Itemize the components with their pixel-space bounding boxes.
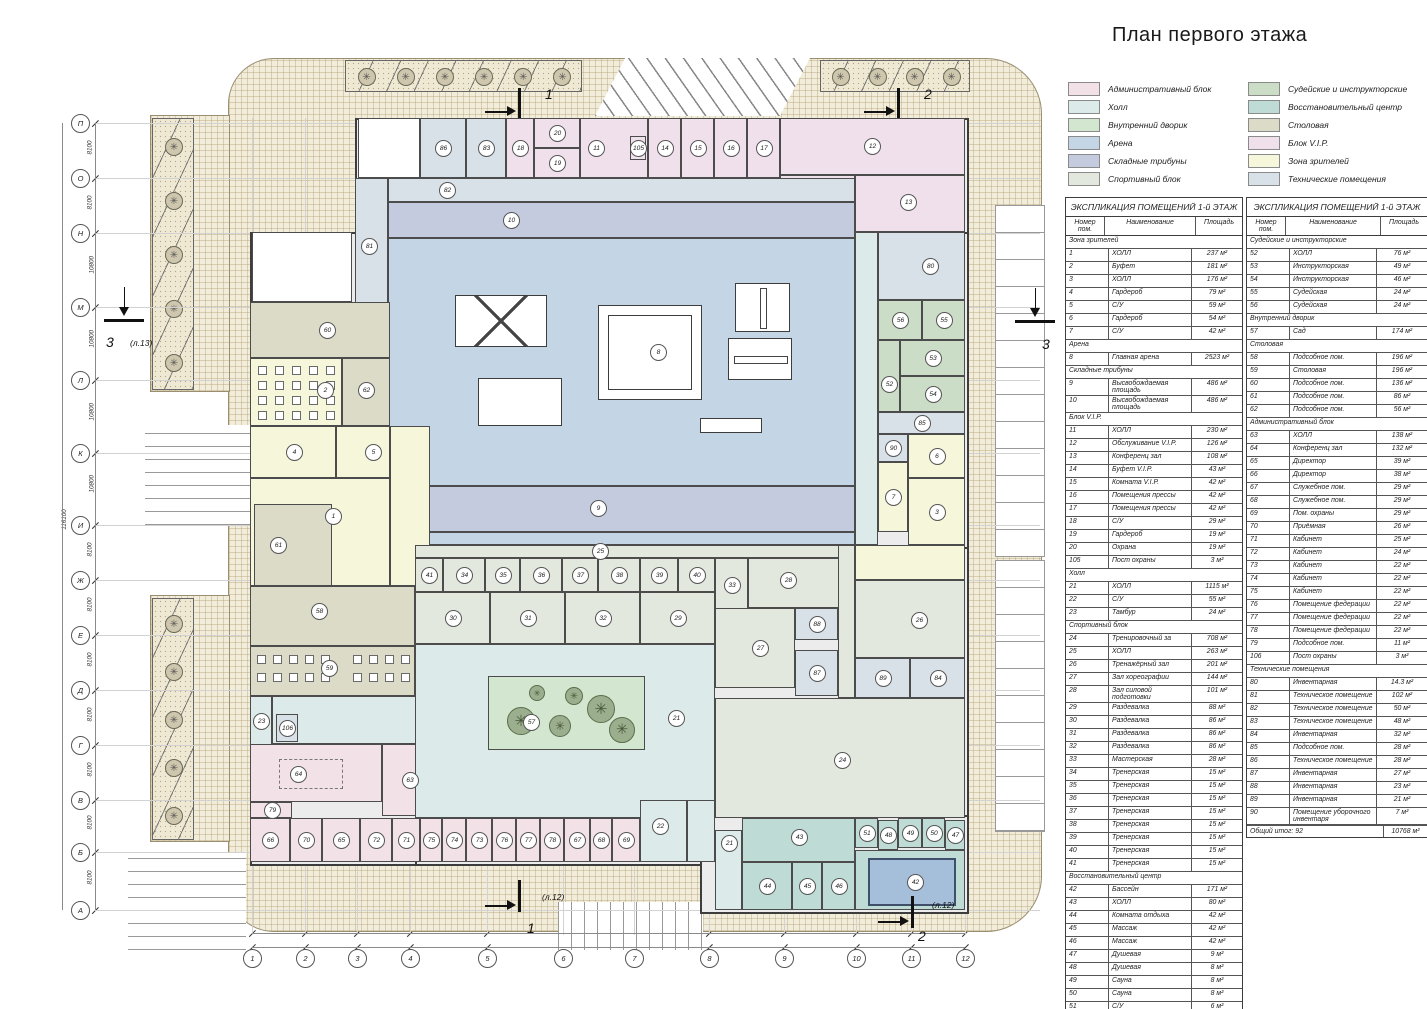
cell-number: 45 bbox=[1066, 924, 1109, 936]
cell-number: 82 bbox=[1247, 704, 1290, 716]
cell-area: 144 м² bbox=[1192, 673, 1242, 685]
parking-stripes bbox=[128, 852, 246, 950]
room-number-39: 39 bbox=[651, 567, 668, 584]
cafe-table-icon bbox=[292, 381, 301, 390]
cell-number: 44 bbox=[1066, 911, 1109, 923]
table-row: 26Тренажёрный зал201 м² bbox=[1066, 660, 1242, 673]
cell-area: 42 м² bbox=[1192, 327, 1242, 339]
cell-name: Служебное пом. bbox=[1290, 496, 1377, 508]
cell-area: 15 м² bbox=[1192, 833, 1242, 845]
cell-area: 14.3 м² bbox=[1377, 678, 1427, 690]
table-section-row: Внутренний дворик bbox=[1247, 314, 1427, 327]
table-row: 84Инвентарная32 м² bbox=[1247, 730, 1427, 743]
cell-area: 171 м² bbox=[1192, 885, 1242, 897]
cell-name: Техническое помещение bbox=[1290, 691, 1377, 703]
cell-area: 11 м² bbox=[1377, 639, 1427, 651]
room-number-49: 49 bbox=[902, 825, 919, 842]
table-section-row: Административный блок bbox=[1247, 418, 1427, 431]
cell-area: 76 м² bbox=[1377, 249, 1427, 261]
cell-number: 84 bbox=[1247, 730, 1290, 742]
room-number-64: 64 bbox=[290, 766, 307, 783]
room-area bbox=[388, 532, 855, 545]
section-label: 3 bbox=[106, 334, 114, 350]
table-footer: Общий итог: 9210768 м² bbox=[1247, 825, 1427, 837]
table-row: 90Помещение уборочного инвентаря7 м² bbox=[1247, 808, 1427, 825]
cell-number: 16 bbox=[1066, 491, 1109, 503]
table-section-row: Блок V.I.P. bbox=[1066, 413, 1242, 426]
axis-circle-8: 8 bbox=[700, 949, 719, 968]
legend-swatch bbox=[1248, 82, 1280, 96]
room-number-69: 69 bbox=[618, 832, 635, 849]
cell-number: 105 bbox=[1066, 556, 1109, 568]
table-row: 15Комната V.I.P.42 м² bbox=[1066, 478, 1242, 491]
tree-icon: ✳ bbox=[436, 68, 454, 86]
cell-number: 24 bbox=[1066, 634, 1109, 646]
cell-name: ХОЛЛ bbox=[1290, 249, 1377, 261]
cell-name: Высвобождаемая площадь bbox=[1109, 396, 1192, 412]
cell-name: Подсобное пом. bbox=[1290, 379, 1377, 391]
cell-area: 3 м² bbox=[1192, 556, 1242, 568]
cafe-table-icon bbox=[385, 673, 394, 682]
cell-name: Судейская bbox=[1290, 288, 1377, 300]
table-row: 51С/У6 м² bbox=[1066, 1002, 1242, 1009]
cell-name: Мастерская bbox=[1109, 755, 1192, 767]
cell-number: 33 bbox=[1066, 755, 1109, 767]
section-sheet-ref: (л.12) bbox=[542, 892, 564, 902]
room-number-80: 80 bbox=[922, 258, 939, 275]
cell-area: 15 м² bbox=[1192, 794, 1242, 806]
table-row: 33Мастерская28 м² bbox=[1066, 755, 1242, 768]
cell-area: 42 м² bbox=[1192, 937, 1242, 949]
cell-name: Сауна bbox=[1109, 976, 1192, 988]
room-number-105: 105 bbox=[630, 140, 647, 157]
cell-number: 74 bbox=[1247, 574, 1290, 586]
room-number-53: 53 bbox=[925, 350, 942, 367]
cell-name: Кабинет bbox=[1290, 561, 1377, 573]
table-section-row: Спортивный блок bbox=[1066, 621, 1242, 634]
cell-area: 22 м² bbox=[1377, 587, 1427, 599]
cell-area: 32 м² bbox=[1377, 730, 1427, 742]
room-number-15: 15 bbox=[690, 140, 707, 157]
room-area bbox=[358, 118, 420, 178]
cell-number: 68 bbox=[1247, 496, 1290, 508]
cell-name: Инвентарная bbox=[1290, 730, 1377, 742]
cell-name: Подсобное пом. bbox=[1290, 405, 1377, 417]
cell-number: 83 bbox=[1247, 717, 1290, 729]
room-number-27: 27 bbox=[752, 640, 769, 657]
cell-number: 21 bbox=[1066, 582, 1109, 594]
section-marker-lead bbox=[485, 905, 509, 907]
room-number-45: 45 bbox=[799, 878, 816, 895]
section-sheet-ref: (л.13) bbox=[130, 338, 152, 348]
room-number-6: 6 bbox=[929, 448, 946, 465]
cell-number: 17 bbox=[1066, 504, 1109, 516]
cell-area: 230 м² bbox=[1192, 426, 1242, 438]
table-row: 47Душевая9 м² bbox=[1066, 950, 1242, 963]
cell-number: 23 bbox=[1066, 608, 1109, 620]
cell-name: ХОЛЛ bbox=[1109, 647, 1192, 659]
room-number-72: 72 bbox=[368, 832, 385, 849]
cell-area: 196 м² bbox=[1377, 353, 1427, 365]
room-number-37: 37 bbox=[572, 567, 589, 584]
cell-name: Тренировочный за bbox=[1109, 634, 1192, 646]
col-header-name: Наименование bbox=[1286, 217, 1381, 235]
cell-number: 75 bbox=[1247, 587, 1290, 599]
cell-name: Подсобное пом. bbox=[1290, 353, 1377, 365]
section-arrow-icon bbox=[507, 106, 516, 116]
legend-label: Внутренний дворик bbox=[1108, 120, 1187, 130]
legend-label: Холл bbox=[1108, 102, 1128, 112]
legend-item: Технические помещения bbox=[1248, 170, 1407, 188]
table-row: 17Помещения прессы42 м² bbox=[1066, 504, 1242, 517]
cell-area: 29 м² bbox=[1377, 496, 1427, 508]
tree-icon: ✳ bbox=[165, 615, 183, 633]
section-label: 2 bbox=[924, 86, 932, 102]
legend-label: Арена bbox=[1108, 138, 1133, 148]
cell-number: 41 bbox=[1066, 859, 1109, 871]
cell-number: 47 bbox=[1066, 950, 1109, 962]
cell-number: 58 bbox=[1247, 353, 1290, 365]
gym-equipment-icon bbox=[478, 378, 562, 426]
footer-total-area: 10768 м² bbox=[1384, 826, 1427, 837]
table-row: 73Кабинет22 м² bbox=[1247, 561, 1427, 574]
room-number-78: 78 bbox=[544, 832, 561, 849]
axis-circle-5: 5 bbox=[478, 949, 497, 968]
cell-number: 60 bbox=[1247, 379, 1290, 391]
cell-number: 13 bbox=[1066, 452, 1109, 464]
cell-number: 49 bbox=[1066, 976, 1109, 988]
table-row: 105Пост охраны3 м² bbox=[1066, 556, 1242, 569]
table-row: 70Приёмная26 м² bbox=[1247, 522, 1427, 535]
room-area bbox=[252, 232, 352, 302]
tree-icon: ✳ bbox=[397, 68, 415, 86]
tree-icon: ✳ bbox=[906, 68, 924, 86]
cell-number: 81 bbox=[1247, 691, 1290, 703]
col-header-number: Номер пом. bbox=[1066, 217, 1105, 235]
cell-name: Кабинет bbox=[1290, 587, 1377, 599]
section-label: 3 bbox=[1042, 336, 1050, 352]
table-row: 20Охрана19 м² bbox=[1066, 543, 1242, 556]
room-number-8: 8 bbox=[650, 344, 667, 361]
dim-line-left bbox=[95, 123, 96, 910]
landscaping-strip: ✳✳✳✳ bbox=[820, 60, 970, 92]
legend-swatch bbox=[1068, 154, 1100, 168]
cell-number: 28 bbox=[1066, 686, 1109, 702]
gym-equipment-icon bbox=[735, 283, 790, 332]
room-number-12: 12 bbox=[864, 138, 881, 155]
cell-name: ХОЛЛ bbox=[1109, 275, 1192, 287]
legend-item: Складные трибуны bbox=[1068, 152, 1211, 170]
cell-area: 181 м² bbox=[1192, 262, 1242, 274]
cell-name: ХОЛЛ bbox=[1109, 898, 1192, 910]
table-row: 32Раздевалка86 м² bbox=[1066, 742, 1242, 755]
cell-number: 89 bbox=[1247, 795, 1290, 807]
table-row: 48Душевая8 м² bbox=[1066, 963, 1242, 976]
table-row: 7С/У42 м² bbox=[1066, 327, 1242, 340]
cell-name: Главная арена bbox=[1109, 353, 1192, 365]
room-number-79: 79 bbox=[264, 802, 281, 819]
cell-number: 19 bbox=[1066, 530, 1109, 542]
cell-area: 196 м² bbox=[1377, 366, 1427, 378]
axis-circle-10: 10 bbox=[847, 949, 866, 968]
axis-circle-В: В bbox=[71, 791, 90, 810]
room-number-89: 89 bbox=[875, 670, 892, 687]
cell-number: 51 bbox=[1066, 1002, 1109, 1009]
axis-circle-Д: Д bbox=[71, 681, 90, 700]
room-number-56: 56 bbox=[892, 312, 909, 329]
section-marker-lead bbox=[878, 921, 902, 923]
cell-number: 63 bbox=[1247, 431, 1290, 443]
room-number-28: 28 bbox=[780, 572, 797, 589]
axis-circle-П: П bbox=[71, 114, 90, 133]
room-number-9: 9 bbox=[590, 500, 607, 517]
cafe-table-icon bbox=[258, 396, 267, 405]
legend-swatch bbox=[1068, 136, 1100, 150]
cafe-table-icon bbox=[309, 366, 318, 375]
table-section-row: Столовая bbox=[1247, 340, 1427, 353]
cafe-table-icon bbox=[326, 411, 335, 420]
room-number-43: 43 bbox=[791, 829, 808, 846]
cafe-table-icon bbox=[305, 673, 314, 682]
cell-name: Тамбур bbox=[1109, 608, 1192, 620]
axis-circle-А: А bbox=[71, 901, 90, 920]
table-section-row: Технические помещения bbox=[1247, 665, 1427, 678]
cafe-table-icon bbox=[273, 673, 282, 682]
table-row: 29Раздевалка88 м² bbox=[1066, 703, 1242, 716]
cafe-table-icon bbox=[305, 655, 314, 664]
cell-name: ХОЛЛ bbox=[1290, 431, 1377, 443]
cell-name: ХОЛЛ bbox=[1109, 582, 1192, 594]
room-9 bbox=[388, 486, 855, 532]
cafe-table-icon bbox=[257, 655, 266, 664]
room-10 bbox=[388, 202, 855, 238]
cafe-table-icon bbox=[273, 655, 282, 664]
table-row: 58Подсобное пом.196 м² bbox=[1247, 353, 1427, 366]
cell-number: 43 bbox=[1066, 898, 1109, 910]
room-number-70: 70 bbox=[298, 832, 315, 849]
table-row: 56Судейская24 м² bbox=[1247, 301, 1427, 314]
table-row: 72Кабинет24 м² bbox=[1247, 548, 1427, 561]
axis-circle-Г: Г bbox=[71, 736, 90, 755]
cell-name: Тренерская bbox=[1109, 807, 1192, 819]
legend-swatch bbox=[1248, 100, 1280, 114]
table-row: 82Техническое помещение50 м² bbox=[1247, 704, 1427, 717]
section-sheet-ref: (л.12) bbox=[932, 900, 954, 910]
table-row: 74Кабинет22 м² bbox=[1247, 574, 1427, 587]
cell-number: 27 bbox=[1066, 673, 1109, 685]
room-57: ✳✳✳✳✳✳ bbox=[488, 676, 645, 750]
conference-table-outline bbox=[279, 759, 343, 789]
dim-label: 8100 bbox=[87, 542, 94, 556]
cell-number: 77 bbox=[1247, 613, 1290, 625]
garden-tree-icon: ✳ bbox=[609, 717, 635, 743]
cafe-table-icon bbox=[258, 411, 267, 420]
room-number-44: 44 bbox=[759, 878, 776, 895]
cell-area: 15 м² bbox=[1192, 846, 1242, 858]
cell-number: 66 bbox=[1247, 470, 1290, 482]
axis-circle-11: 11 bbox=[902, 949, 921, 968]
table-row: 53Инструкторская49 м² bbox=[1247, 262, 1427, 275]
table-row: 71Кабинет25 м² bbox=[1247, 535, 1427, 548]
table-row: 62Подсобное пом.56 м² bbox=[1247, 405, 1427, 418]
cell-area: 15 м² bbox=[1192, 768, 1242, 780]
cell-area: 22 м² bbox=[1377, 561, 1427, 573]
cell-name: Раздевалка bbox=[1109, 742, 1192, 754]
room-number-16: 16 bbox=[723, 140, 740, 157]
axis-circle-1: 1 bbox=[243, 949, 262, 968]
tree-icon: ✳ bbox=[553, 68, 571, 86]
cell-name: Директор bbox=[1290, 470, 1377, 482]
table-row: 43ХОЛЛ80 м² bbox=[1066, 898, 1242, 911]
table-row: 34Тренерская15 м² bbox=[1066, 768, 1242, 781]
cafe-table-icon bbox=[401, 655, 410, 664]
cell-area: 42 м² bbox=[1192, 478, 1242, 490]
room-number-42: 42 bbox=[907, 874, 924, 891]
room-number-71: 71 bbox=[398, 832, 415, 849]
room-number-21: 21 bbox=[668, 710, 685, 727]
cell-name: Гардероб bbox=[1109, 288, 1192, 300]
cell-number: 4 bbox=[1066, 288, 1109, 300]
room-number-83: 83 bbox=[478, 140, 495, 157]
room-number-22: 22 bbox=[652, 818, 669, 835]
table-section-row: Складные трибуны bbox=[1066, 366, 1242, 379]
legend-swatch bbox=[1068, 118, 1100, 132]
cell-number: 57 bbox=[1247, 327, 1290, 339]
cell-name: ХОЛЛ bbox=[1109, 249, 1192, 261]
cell-number: 25 bbox=[1066, 647, 1109, 659]
cell-number: 50 bbox=[1066, 989, 1109, 1001]
cell-number: 61 bbox=[1247, 392, 1290, 404]
room-26 bbox=[855, 580, 965, 658]
cell-area: 27 м² bbox=[1377, 769, 1427, 781]
cell-number: 36 bbox=[1066, 794, 1109, 806]
cell-name: С/У bbox=[1109, 595, 1192, 607]
cell-number: 30 bbox=[1066, 716, 1109, 728]
cell-number: 73 bbox=[1247, 561, 1290, 573]
table-row: 6Гардероб54 м² bbox=[1066, 314, 1242, 327]
cell-area: 28 м² bbox=[1192, 755, 1242, 767]
table-row: 5С/У59 м² bbox=[1066, 301, 1242, 314]
cell-number: 37 bbox=[1066, 807, 1109, 819]
room-area bbox=[855, 232, 878, 545]
cell-name: С/У bbox=[1109, 301, 1192, 313]
table-header-row: Номер пом.НаименованиеПлощадь bbox=[1247, 217, 1427, 236]
cell-area: 101 м² bbox=[1192, 686, 1242, 702]
room-82 bbox=[388, 178, 855, 202]
cafe-table-icon bbox=[258, 366, 267, 375]
dim-label: 8100 bbox=[87, 597, 94, 611]
table-row: 27Зал хореографии144 м² bbox=[1066, 673, 1242, 686]
room-number-2: 2 bbox=[317, 382, 334, 399]
axis-circle-6: 6 bbox=[554, 949, 573, 968]
cell-number: 35 bbox=[1066, 781, 1109, 793]
axis-circle-2: 2 bbox=[296, 949, 315, 968]
cell-name: Инвентарная bbox=[1290, 769, 1377, 781]
cafe-table-icon bbox=[275, 381, 284, 390]
table-row: 37Тренерская15 м² bbox=[1066, 807, 1242, 820]
cell-number: 46 bbox=[1066, 937, 1109, 949]
table-title: ЭКСПЛИКАЦИЯ ПОМЕЩЕНИЙ 1-й ЭТАЖ bbox=[1066, 198, 1242, 217]
cell-name: Приёмная bbox=[1290, 522, 1377, 534]
table-section-row: Восстановительный центр bbox=[1066, 872, 1242, 885]
legend-item: Административный блок bbox=[1068, 80, 1211, 98]
room-area bbox=[855, 545, 965, 580]
dim-line-bottom-total bbox=[252, 947, 965, 948]
cell-name: Душевая bbox=[1109, 963, 1192, 975]
cell-name: Тренерская bbox=[1109, 859, 1192, 871]
cell-number: 78 bbox=[1247, 626, 1290, 638]
legend-swatch bbox=[1068, 82, 1100, 96]
section-arrow-icon bbox=[507, 900, 516, 910]
cell-name: Раздевалка bbox=[1109, 716, 1192, 728]
cell-area: 86 м² bbox=[1377, 392, 1427, 404]
cell-number: 67 bbox=[1247, 483, 1290, 495]
table-row: 41Тренерская15 м² bbox=[1066, 859, 1242, 872]
table-row: 49Сауна8 м² bbox=[1066, 976, 1242, 989]
cell-area: 8 м² bbox=[1192, 976, 1242, 988]
room-number-5: 5 bbox=[365, 444, 382, 461]
cell-number: 3 bbox=[1066, 275, 1109, 287]
legend-label: Блок V.I.P. bbox=[1288, 138, 1329, 148]
cell-number: 29 bbox=[1066, 703, 1109, 715]
tree-icon: ✳ bbox=[475, 68, 493, 86]
table-row: 18С/У29 м² bbox=[1066, 517, 1242, 530]
table-row: 85Подсобное пом.28 м² bbox=[1247, 743, 1427, 756]
room-number-33: 33 bbox=[724, 577, 741, 594]
cell-area: 86 м² bbox=[1192, 716, 1242, 728]
table-row: 65Директор39 м² bbox=[1247, 457, 1427, 470]
cell-name: Кабинет bbox=[1290, 548, 1377, 560]
cell-number: 10 bbox=[1066, 396, 1109, 412]
room-number-26: 26 bbox=[911, 612, 928, 629]
cell-number: 70 bbox=[1247, 522, 1290, 534]
col-header-area: Площадь bbox=[1196, 217, 1242, 235]
cell-name: Техническое помещение bbox=[1290, 704, 1377, 716]
cell-number: 52 bbox=[1247, 249, 1290, 261]
cell-name: Массаж bbox=[1109, 924, 1192, 936]
table-row: 31Раздевалка86 м² bbox=[1066, 729, 1242, 742]
cell-area: 7 м² bbox=[1377, 808, 1427, 824]
cell-number: 106 bbox=[1247, 652, 1290, 664]
cell-number: 15 bbox=[1066, 478, 1109, 490]
axis-circle-Л: Л bbox=[71, 371, 90, 390]
table-row: 4Гардероб79 м² bbox=[1066, 288, 1242, 301]
garden-tree-icon: ✳ bbox=[587, 695, 615, 723]
table-row: 79Подсобное пом.11 м² bbox=[1247, 639, 1427, 652]
section-marker-lead bbox=[864, 111, 888, 113]
legend-item: Зона зрителей bbox=[1248, 152, 1407, 170]
cell-area: 102 м² bbox=[1377, 691, 1427, 703]
cell-name: Раздевалка bbox=[1109, 729, 1192, 741]
gym-equipment-icon bbox=[728, 338, 792, 380]
room-64 bbox=[250, 744, 382, 802]
cell-number: 20 bbox=[1066, 543, 1109, 555]
cell-number: 12 bbox=[1066, 439, 1109, 451]
table-row: 66Директор38 м² bbox=[1247, 470, 1427, 483]
cell-area: 80 м² bbox=[1192, 898, 1242, 910]
tree-icon: ✳ bbox=[165, 807, 183, 825]
cell-name: Служебное пом. bbox=[1290, 483, 1377, 495]
cell-number: 39 bbox=[1066, 833, 1109, 845]
room-number-3: 3 bbox=[929, 504, 946, 521]
room-number-34: 34 bbox=[456, 567, 473, 584]
cell-area: 486 м² bbox=[1192, 396, 1242, 412]
service-squares-column bbox=[995, 205, 1045, 557]
cell-name: Судейская bbox=[1290, 301, 1377, 313]
room-number-35: 35 bbox=[495, 567, 512, 584]
cell-number: 65 bbox=[1247, 457, 1290, 469]
cell-name: Конференц зал bbox=[1109, 452, 1192, 464]
